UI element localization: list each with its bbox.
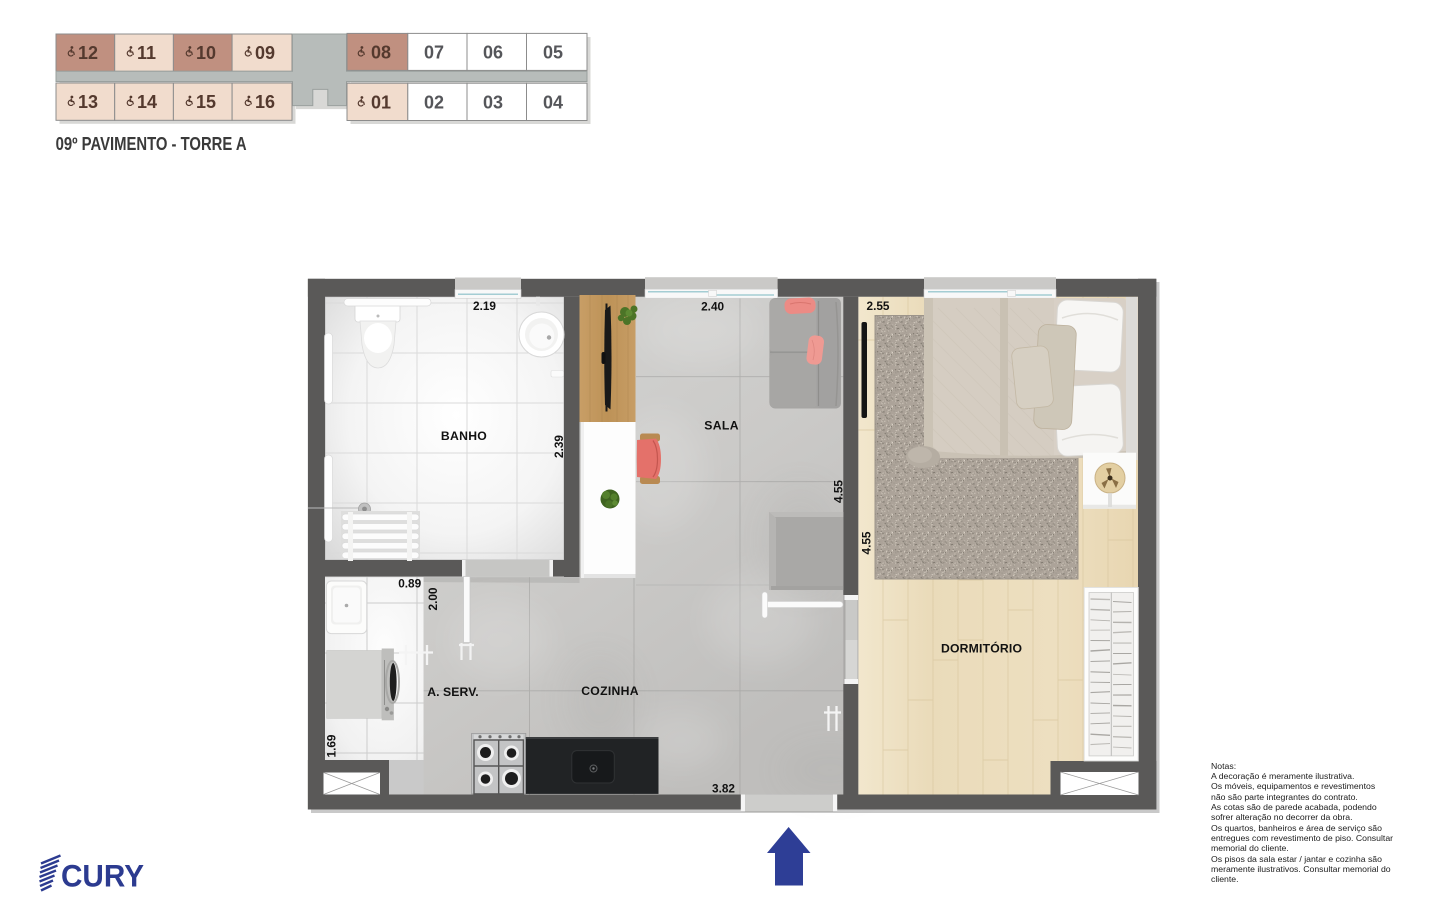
svg-text:1.69: 1.69 bbox=[325, 734, 339, 757]
svg-text:2.55: 2.55 bbox=[867, 299, 890, 313]
svg-text:16: 16 bbox=[255, 92, 275, 112]
svg-text:DORMITÓRIO: DORMITÓRIO bbox=[941, 641, 1022, 656]
svg-text:06: 06 bbox=[483, 43, 503, 63]
svg-text:07: 07 bbox=[424, 43, 444, 63]
svg-text:2.00: 2.00 bbox=[426, 587, 440, 610]
svg-text:COZINHA: COZINHA bbox=[581, 684, 639, 698]
svg-text:CURY: CURY bbox=[61, 858, 144, 894]
svg-text:14: 14 bbox=[137, 92, 157, 112]
svg-text:3.82: 3.82 bbox=[712, 781, 735, 795]
svg-text:BANHO: BANHO bbox=[441, 429, 487, 443]
svg-text:04: 04 bbox=[543, 93, 563, 113]
svg-text:15: 15 bbox=[196, 92, 216, 112]
svg-text:13: 13 bbox=[78, 92, 98, 112]
svg-text:09º PAVIMENTO - TORRE A: 09º PAVIMENTO - TORRE A bbox=[56, 134, 247, 154]
svg-text:SALA: SALA bbox=[704, 418, 739, 432]
svg-text:08: 08 bbox=[371, 43, 391, 63]
svg-text:09: 09 bbox=[255, 43, 275, 63]
svg-text:01: 01 bbox=[371, 93, 391, 113]
svg-text:12: 12 bbox=[78, 43, 98, 63]
svg-text:10: 10 bbox=[196, 43, 216, 63]
svg-text:02: 02 bbox=[424, 93, 444, 113]
svg-text:A. SERV.: A. SERV. bbox=[427, 685, 479, 699]
svg-text:05: 05 bbox=[543, 43, 563, 63]
svg-text:2.19: 2.19 bbox=[473, 299, 496, 313]
svg-text:2.40: 2.40 bbox=[701, 299, 724, 313]
svg-text:4.55: 4.55 bbox=[860, 531, 874, 554]
svg-text:03: 03 bbox=[483, 93, 503, 113]
svg-text:2.39: 2.39 bbox=[552, 435, 566, 458]
svg-text:11: 11 bbox=[137, 43, 156, 63]
svg-text:0.89: 0.89 bbox=[398, 577, 421, 591]
svg-text:4.55: 4.55 bbox=[832, 480, 846, 503]
